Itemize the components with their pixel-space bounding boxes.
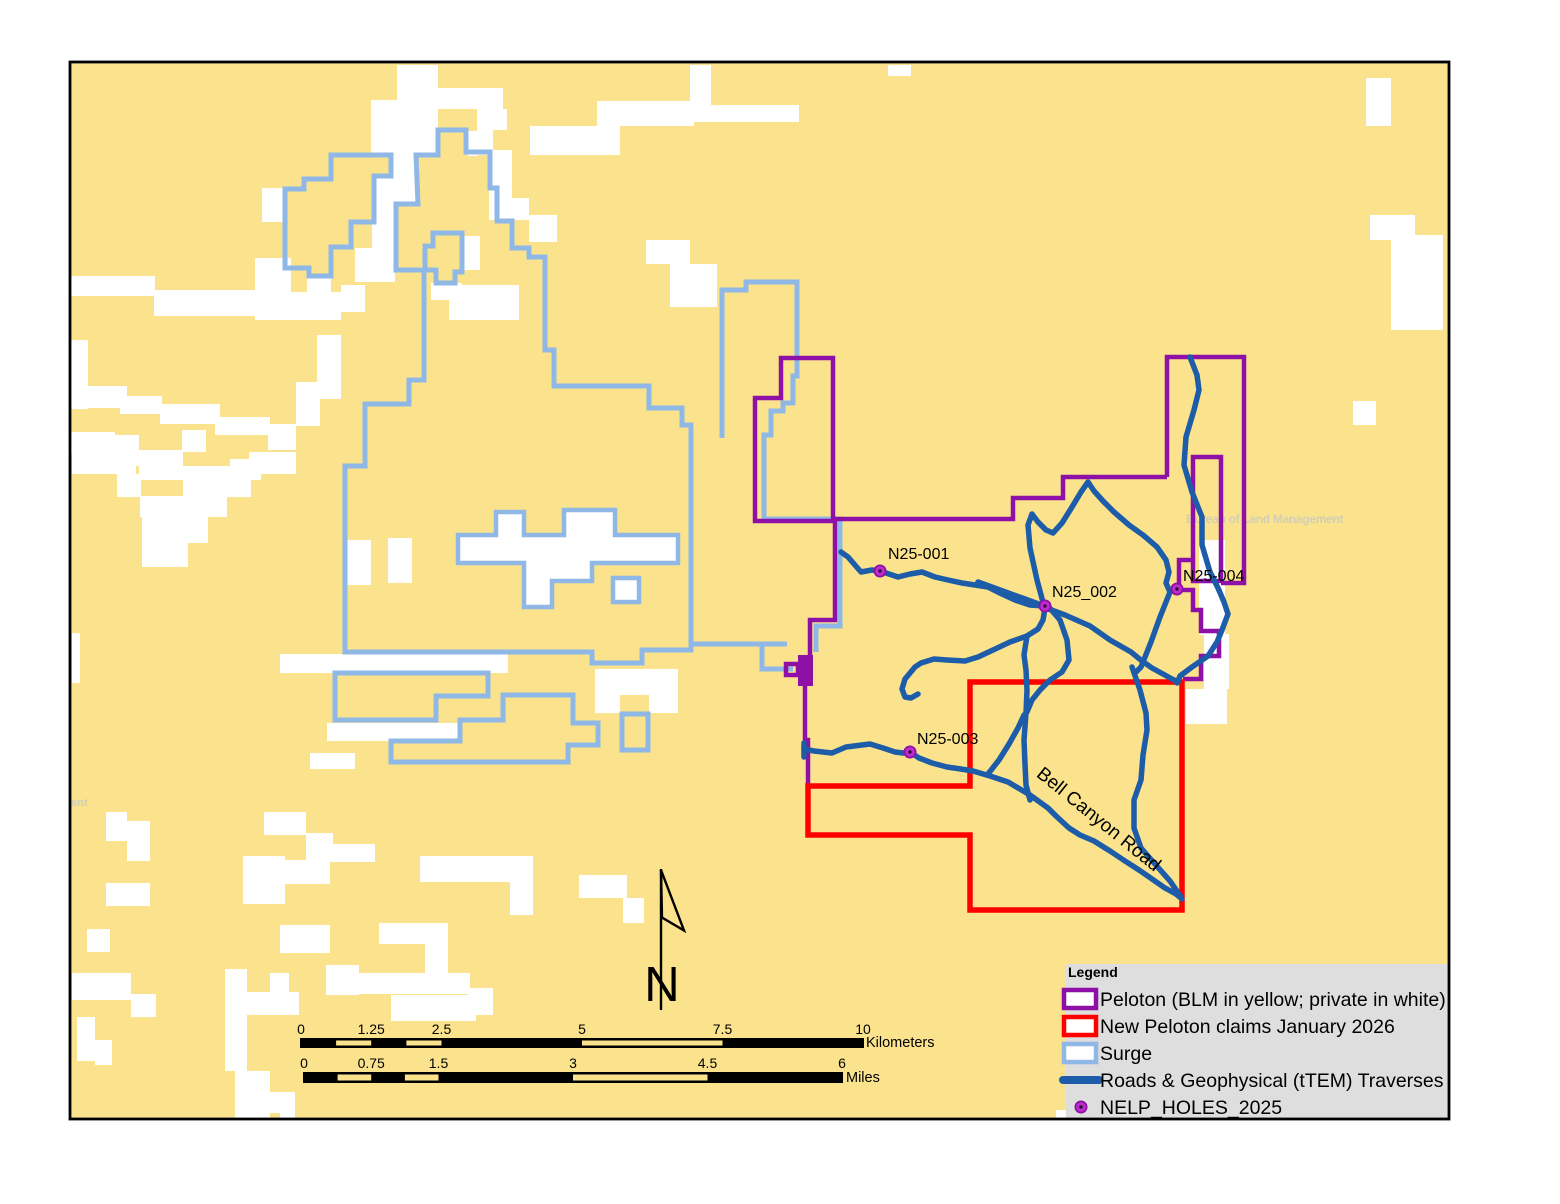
svg-text:New Peloton claims January 202: New Peloton claims January 2026: [1100, 1016, 1395, 1038]
svg-text:Roads & Geophysical (tTEM) Tra: Roads & Geophysical (tTEM) Traverses: [1100, 1070, 1444, 1092]
svg-text:ent: ent: [71, 797, 88, 809]
svg-text:N25-004: N25-004: [1183, 568, 1244, 585]
svg-text:Surge: Surge: [1100, 1043, 1152, 1065]
svg-text:1.25: 1.25: [358, 1021, 385, 1037]
svg-text:N25-001: N25-001: [888, 546, 949, 563]
svg-text:N: N: [644, 958, 679, 1012]
svg-text:0.75: 0.75: [358, 1055, 385, 1071]
svg-text:4.5: 4.5: [698, 1055, 718, 1071]
svg-text:Bureau of Land Management: Bureau of Land Management: [1186, 512, 1343, 526]
svg-text:2.5: 2.5: [432, 1021, 452, 1037]
svg-text:NELP_HOLES_2025: NELP_HOLES_2025: [1100, 1097, 1282, 1119]
svg-text:Kilometers: Kilometers: [866, 1035, 935, 1051]
svg-text:6: 6: [838, 1055, 846, 1071]
svg-text:7.5: 7.5: [713, 1021, 733, 1037]
svg-text:Peloton (BLM in yellow; privat: Peloton (BLM in yellow; private in white…: [1100, 989, 1446, 1011]
svg-text:3: 3: [569, 1055, 577, 1071]
svg-text:Miles: Miles: [846, 1070, 880, 1086]
svg-text:0: 0: [300, 1055, 308, 1071]
svg-text:N25_002: N25_002: [1052, 584, 1117, 601]
svg-text:0: 0: [297, 1021, 305, 1037]
svg-text:1.5: 1.5: [429, 1055, 449, 1071]
svg-text:5: 5: [578, 1021, 586, 1037]
svg-text:N25-003: N25-003: [917, 731, 978, 748]
svg-text:Legend: Legend: [1068, 964, 1118, 980]
